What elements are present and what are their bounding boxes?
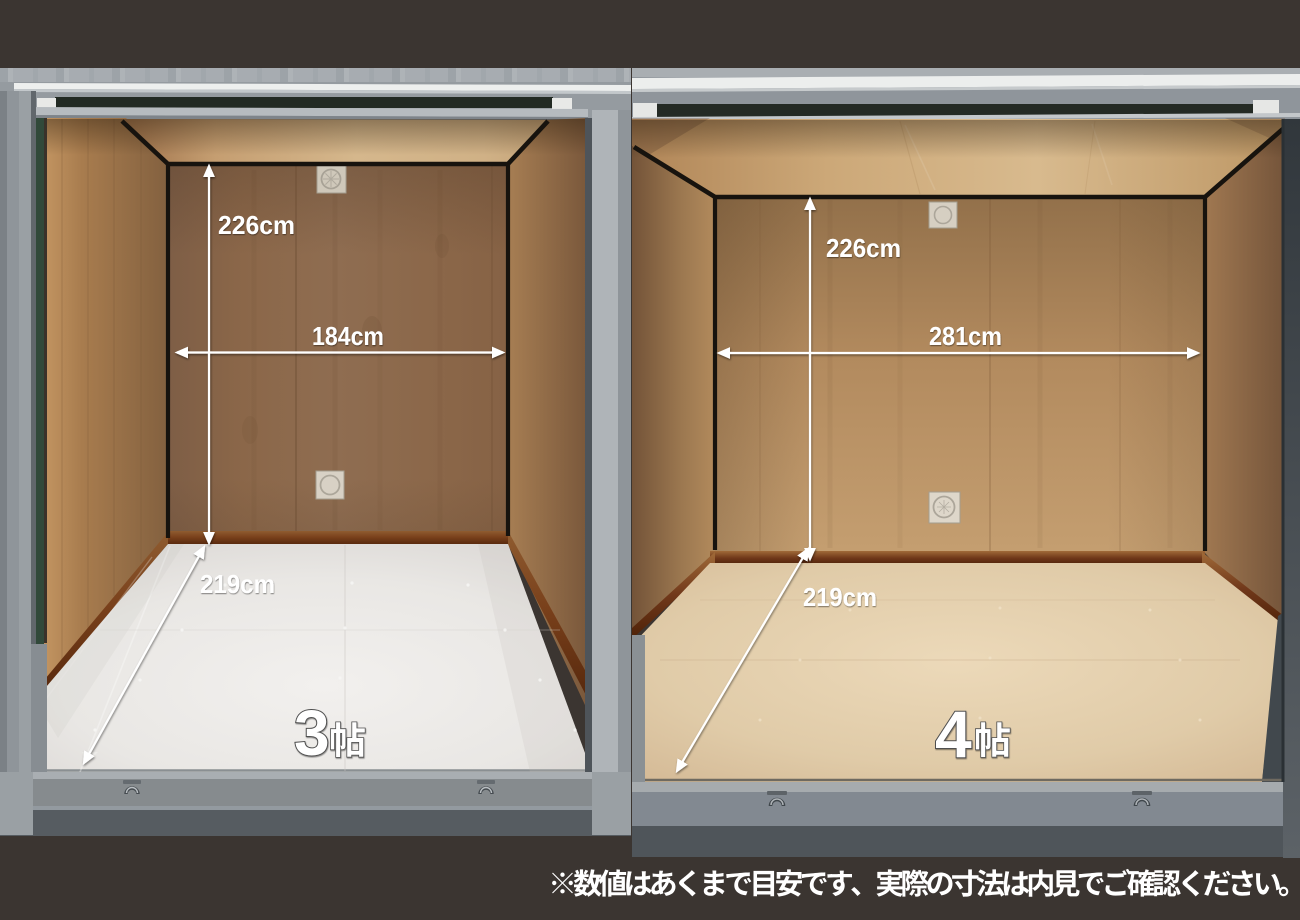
svg-text:281cm: 281cm: [929, 321, 1002, 351]
svg-text:4: 4: [935, 697, 972, 771]
svg-text:3: 3: [294, 697, 330, 769]
svg-text:226cm: 226cm: [218, 210, 295, 240]
svg-text:184cm: 184cm: [312, 321, 384, 351]
svg-text:226cm: 226cm: [826, 233, 901, 263]
svg-text:219cm: 219cm: [200, 569, 275, 599]
svg-text:219cm: 219cm: [803, 582, 877, 612]
